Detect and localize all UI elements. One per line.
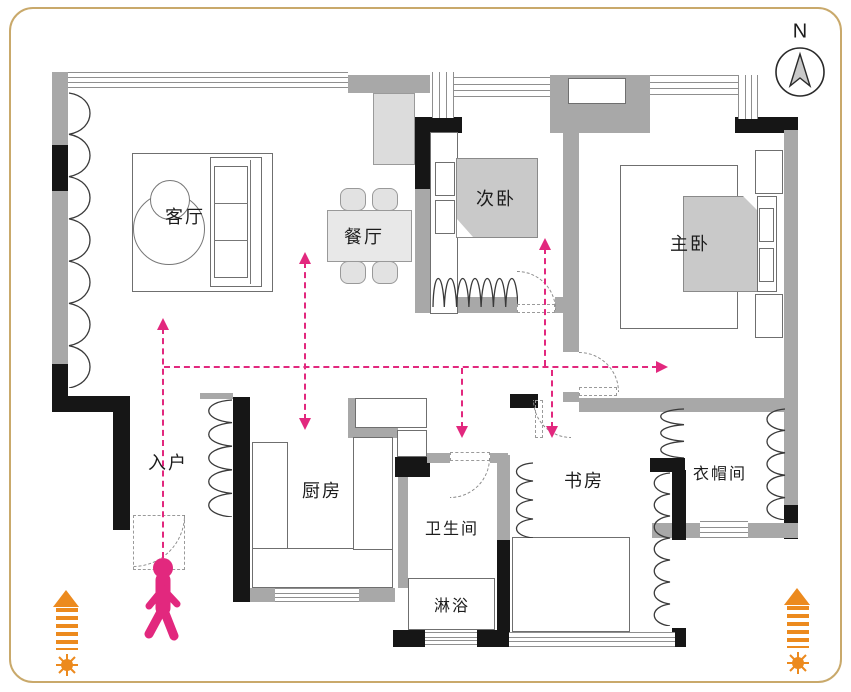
sofa-cushion-divider: [214, 203, 248, 204]
nightstand: [755, 294, 783, 338]
wall-bath-bottom-black-right: [477, 630, 509, 647]
pillow: [759, 208, 774, 242]
door-swing-hall: [579, 352, 619, 392]
compass: [774, 46, 826, 98]
window-jog-vertical: [432, 72, 454, 118]
wall-study-right-black: [672, 470, 686, 540]
window-bedroom2-top: [454, 77, 550, 97]
window-kitchen-bottom: [275, 588, 359, 602]
sun-icon: [52, 652, 82, 678]
circulation-arrowhead: [299, 252, 311, 264]
circulation-arrowhead: [656, 361, 668, 373]
sunlight-arrow-bars: [787, 606, 809, 648]
pillow: [759, 248, 774, 282]
room-label-master-bedroom: 主卧: [670, 230, 710, 256]
sofa-cushions: [214, 166, 248, 278]
window-cloakroom-bottom: [700, 521, 748, 538]
room-label-cloakroom: 衣帽间: [693, 460, 747, 484]
bath-study-wardrobe-coil: [510, 462, 534, 538]
sofa-cushion-divider: [214, 240, 248, 241]
wall-bath-right-gray: [497, 455, 510, 540]
circulation-arrowhead: [157, 318, 169, 330]
wall-kitchen-corner-black: [395, 457, 430, 477]
floor-plan: N 客厅 餐厅 次卧 主卧 入户 厨房 卫生间 淋浴 书房 衣帽间: [0, 0, 851, 692]
circulation-arrowhead: [299, 418, 311, 430]
room-label-shower: 淋浴: [434, 592, 470, 616]
dining-chair: [340, 188, 366, 211]
shaft-niche: [568, 78, 626, 104]
circulation-line-bathroom: [461, 368, 463, 428]
study-right-wardrobe-coil: [648, 472, 671, 626]
wall-jog-black-vert: [415, 117, 430, 189]
wall-right-exterior: [784, 130, 798, 505]
cloakroom-right-wardrobe-coil: [760, 408, 786, 520]
wall-kitchen-left-black: [233, 397, 250, 602]
bedroom2-radiator-coil: [432, 268, 518, 308]
room-label-living: 客厅: [165, 203, 205, 229]
sun-icon: [783, 650, 813, 676]
north-label: N: [793, 21, 807, 44]
pillow: [435, 200, 455, 234]
sunlight-arrow-bars: [56, 608, 78, 650]
wall-bath-top-left: [427, 453, 450, 463]
curtain-living-left: [68, 92, 98, 388]
person-icon: [141, 556, 185, 648]
cloakroom-left-wardrobe-coil: [652, 408, 685, 458]
dining-cabinet: [373, 93, 415, 165]
circulation-arrowhead: [546, 426, 558, 438]
wall-entry-left-black: [113, 396, 130, 530]
dining-chair: [372, 261, 398, 284]
room-label-study: 书房: [564, 467, 604, 493]
sofa-backrest-line: [250, 160, 251, 284]
circulation-arrowhead: [456, 426, 468, 438]
room-label-bathroom: 卫生间: [425, 515, 479, 539]
wall-bath-left: [398, 477, 408, 588]
dining-chair: [340, 261, 366, 284]
window-living-top: [68, 72, 348, 88]
kitchen-cabinet-top: [355, 398, 427, 428]
circulation-line-study: [551, 370, 553, 428]
circulation-line-dining-kitchen: [304, 262, 306, 420]
entry-shoe-cabinet-coil: [200, 399, 233, 517]
desk-study: [512, 537, 630, 632]
window-study-bottom: [509, 632, 675, 647]
room-label-entry: 入户: [148, 449, 188, 475]
wall-bath-right-black: [497, 540, 510, 633]
wall-hall-master: [563, 133, 579, 352]
kitchen-counter-right: [353, 437, 393, 550]
window-master-jog: [738, 75, 758, 119]
wall-bath-bottom-black-left: [393, 630, 425, 647]
wall-left-exterior: [52, 72, 68, 364]
circulation-arrowhead: [539, 238, 551, 250]
door-swing-bedroom2: [517, 271, 556, 310]
kitchen-counter-bottom: [252, 548, 393, 588]
wall-cloakroom-black-bar: [650, 458, 685, 472]
sunlight-arrow-icon: [53, 590, 79, 607]
circulation-line-bedroom2: [544, 248, 546, 366]
wall-dining-top: [348, 75, 430, 93]
room-label-dining: 餐厅: [344, 223, 384, 249]
circulation-line-entry: [162, 328, 164, 558]
room-label-second-bedroom: 次卧: [476, 185, 516, 211]
window-shower-bottom: [425, 632, 477, 645]
kitchen-cabinet-side: [397, 430, 427, 457]
dining-chair: [372, 188, 398, 211]
wall-dining-bedroom2: [415, 189, 430, 313]
pillow: [435, 162, 455, 196]
door-swing-bathroom: [450, 458, 490, 498]
circulation-line-main: [164, 366, 658, 368]
nightstand: [755, 150, 783, 194]
sunlight-arrow-icon: [784, 588, 810, 605]
room-label-kitchen: 厨房: [302, 477, 342, 503]
north-arrow-icon: [774, 46, 826, 98]
kitchen-counter-left: [252, 442, 288, 550]
wall-left-black-segment: [52, 145, 68, 191]
window-master-top: [650, 75, 738, 95]
